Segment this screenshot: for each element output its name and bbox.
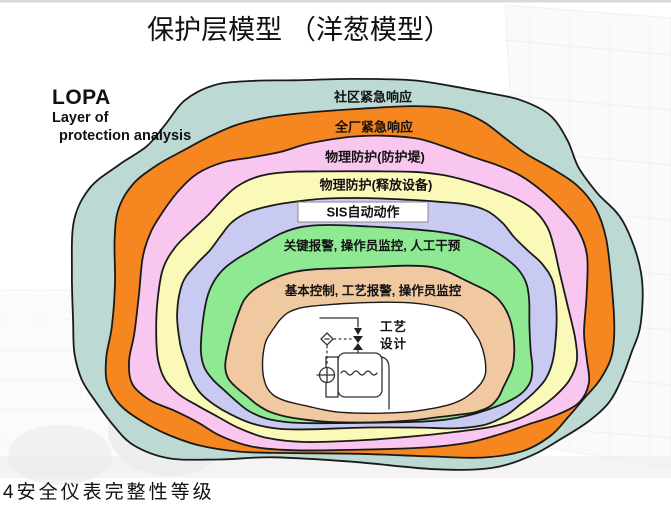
slide: 保护层模型 （洋葱模型） LOPA Layer of protection an… <box>0 0 671 516</box>
outlet-pipe <box>382 357 389 409</box>
layer-label-plant-emergency-response: 全厂紧急响应 <box>335 121 413 134</box>
lopa-line2: protection analysis <box>52 127 191 145</box>
layer-label-physical-protection-dike: 物理防护(防护堤) <box>325 151 425 164</box>
valve-icon <box>353 336 363 350</box>
layer-label-sis-automatic-action: SIS自动动作 <box>298 202 429 223</box>
layer-label-physical-protection-relief-devices: 物理防护(释放设备) <box>320 179 433 192</box>
layer-label-critical-alarm-operator-intervention: 关键报警, 操作员监控, 人工干预 <box>284 240 460 253</box>
layer-label-basic-control-process-alarms: 基本控制, 工艺报警, 操作员监控 <box>285 285 461 298</box>
footer-caption: 4安全仪表完整性等级 <box>3 482 215 504</box>
layer-label-community-emergency-response: 社区紧急响应 <box>334 91 412 104</box>
lopa-heading: LOPA Layer of protection analysis <box>52 86 191 145</box>
process-design-sketch <box>300 312 410 412</box>
onion-diagram <box>0 0 671 516</box>
lopa-abbr: LOPA <box>52 86 191 109</box>
page-title: 保护层模型 （洋葱模型） <box>147 14 451 46</box>
lopa-line1: Layer of <box>52 109 191 127</box>
flow-arrow-icon <box>354 328 362 335</box>
inlet-pipe <box>320 318 358 327</box>
